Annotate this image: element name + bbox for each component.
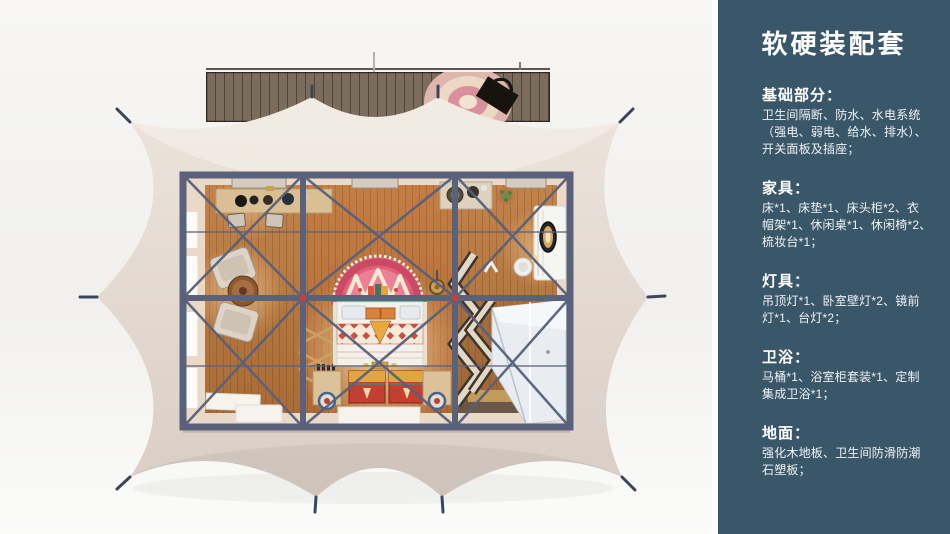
desk-chair <box>265 213 283 227</box>
section-line: 马桶*1、浴室柜套装*1、定制 <box>762 369 924 386</box>
tent-render <box>0 0 712 534</box>
section-bathroom: 卫浴： 马桶*1、浴室柜套装*1、定制 集成卫浴*1； <box>762 349 924 403</box>
section-line: 床*1、床垫*1、床头柜*2、衣 <box>762 200 924 217</box>
section-heading: 卫浴： <box>762 349 924 366</box>
section-heading: 灯具： <box>762 273 924 290</box>
section-line: 开关面板及插座； <box>762 141 924 158</box>
section-lighting: 灯具： 吊顶灯*1、卧室壁灯*2、镜前 灯*1、台灯*2； <box>762 273 924 327</box>
section-heading: 地面： <box>762 425 924 442</box>
section-line: 梳妆台*1； <box>762 234 924 251</box>
section-line: 吊顶灯*1、卧室壁灯*2、镜前 <box>762 293 924 310</box>
joint-connector <box>300 295 307 302</box>
page: 软硬装配套 基础部分： 卫生间隔断、防水、水电系统 （强电、弱电、给水、排水）、… <box>0 0 950 534</box>
section-line: （强电、弱电、给水、排水）、 <box>762 124 924 141</box>
section-furniture: 家具： 床*1、床垫*1、床头柜*2、衣 帽架*1、休闲桌*1、休闲椅*2、 梳… <box>762 180 924 251</box>
desk-chair <box>227 213 245 228</box>
section-line: 石塑板； <box>762 462 924 479</box>
hat <box>235 195 247 207</box>
section-basics: 基础部分： 卫生间隔断、防水、水电系统 （强电、弱电、给水、排水）、 开关面板及… <box>762 87 924 158</box>
info-panel: 软硬装配套 基础部分： 卫生间隔断、防水、水电系统 （强电、弱电、给水、排水）、… <box>718 0 950 534</box>
section-line: 卫生间隔断、防水、水电系统 <box>762 107 924 124</box>
pillow <box>400 306 420 319</box>
joint-connector <box>452 295 459 302</box>
ground-shadow <box>134 472 614 504</box>
section-floor: 地面： 强化木地板、卫生间防滑防潮 石塑板； <box>762 425 924 479</box>
nightstand-left <box>313 371 341 409</box>
potted-plant <box>497 187 515 205</box>
panel-title: 软硬装配套 <box>718 28 950 60</box>
room <box>183 170 580 437</box>
section-line: 集成卫浴*1； <box>762 386 924 403</box>
section-heading: 基础部分： <box>762 87 924 104</box>
pillow <box>342 306 366 319</box>
section-line: 强化木地板、卫生间防滑防潮 <box>762 445 924 462</box>
section-line: 帽架*1、休闲桌*1、休闲椅*2、 <box>762 217 924 234</box>
section-heading: 家具： <box>762 180 924 197</box>
section-line: 灯*1、台灯*2； <box>762 310 924 327</box>
